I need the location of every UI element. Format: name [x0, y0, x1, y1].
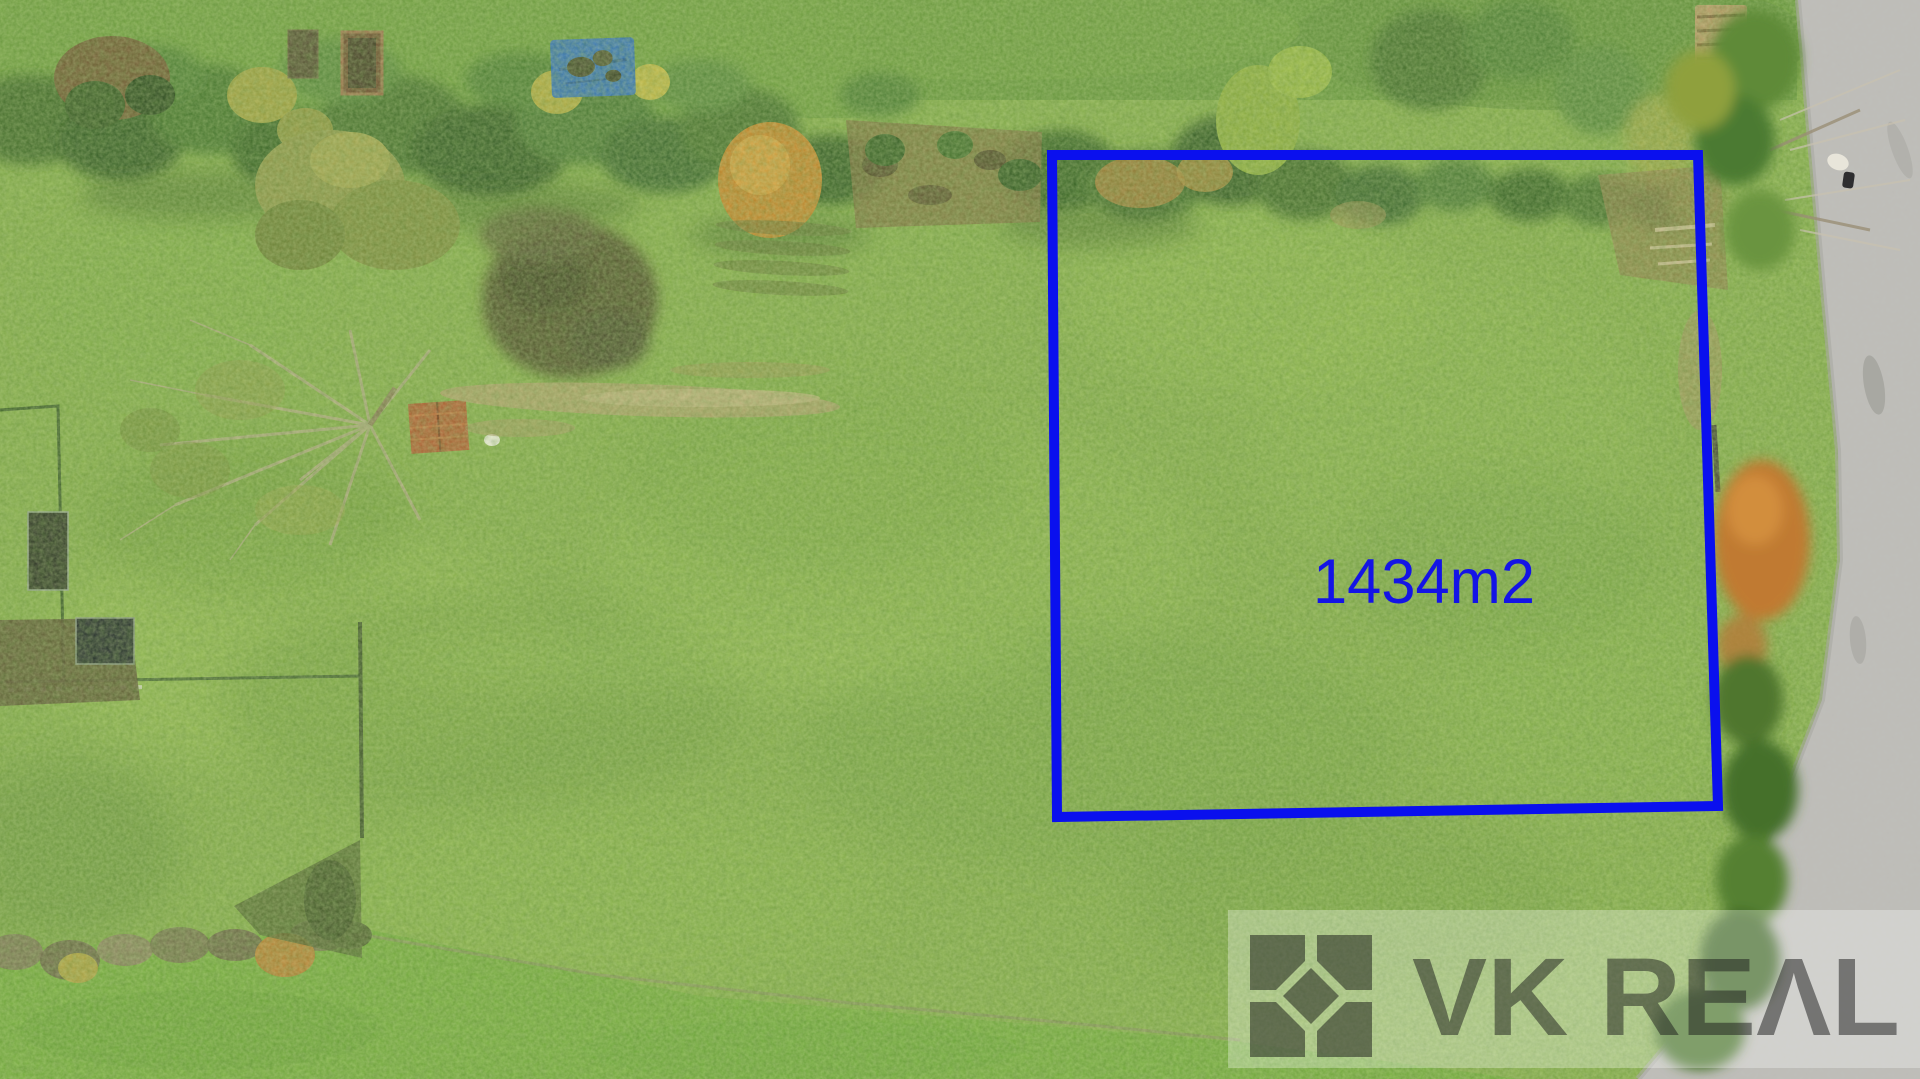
dark-figure — [1842, 171, 1855, 188]
screenshot: 1434m2 VK REΛL — [0, 0, 1920, 1079]
watermark: VK REΛL — [1228, 910, 1920, 1068]
plot-area-label: 1434m2 — [1313, 547, 1535, 617]
vk-real-logo-text: VK REΛL — [1412, 936, 1900, 1059]
aerial-photo: 1434m2 VK REΛL — [0, 0, 1920, 1079]
